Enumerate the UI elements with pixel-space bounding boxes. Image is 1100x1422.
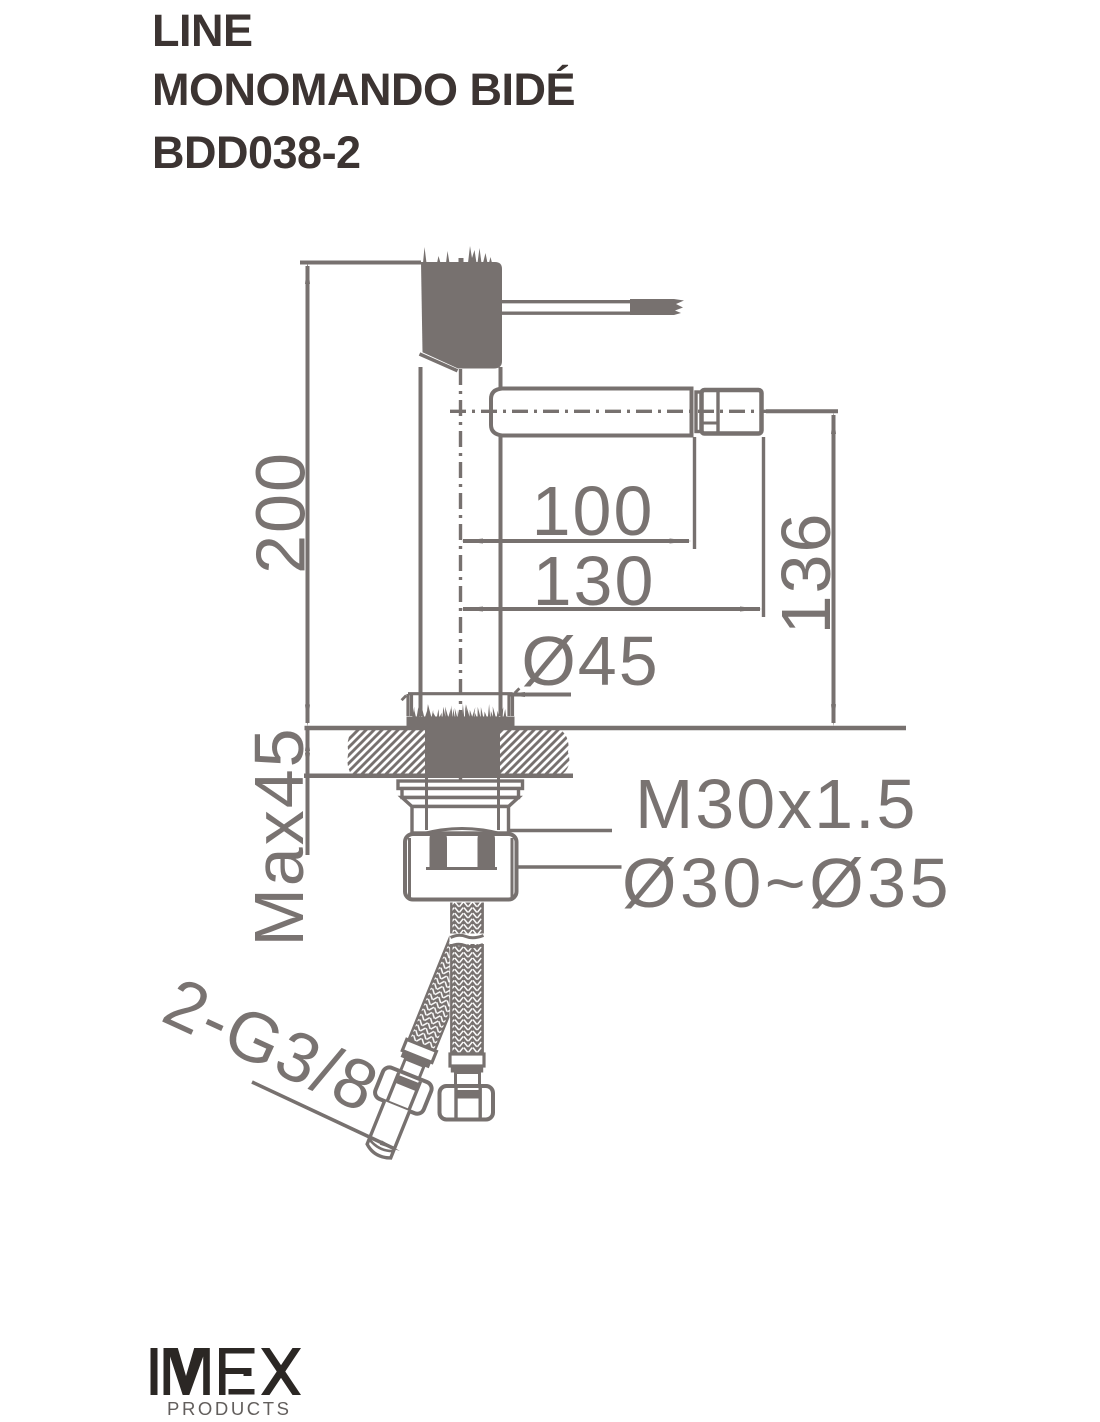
svg-text:LINE: LINE: [152, 5, 253, 56]
svg-text:Max45: Max45: [240, 726, 318, 946]
svg-text:100: 100: [532, 472, 655, 550]
svg-text:Ø30~Ø35: Ø30~Ø35: [622, 844, 952, 922]
svg-text:PRODUCTS: PRODUCTS: [167, 1398, 292, 1419]
svg-text:BDD038-2: BDD038-2: [152, 127, 361, 178]
svg-text:M30x1.5: M30x1.5: [635, 765, 917, 843]
svg-text:136: 136: [767, 512, 845, 635]
svg-text:MONOMANDO BIDÉ: MONOMANDO BIDÉ: [152, 64, 575, 115]
svg-text:Ø45: Ø45: [521, 622, 659, 700]
svg-text:130: 130: [533, 542, 656, 620]
svg-text:2-G3/8: 2-G3/8: [153, 963, 391, 1128]
svg-text:200: 200: [242, 451, 320, 574]
